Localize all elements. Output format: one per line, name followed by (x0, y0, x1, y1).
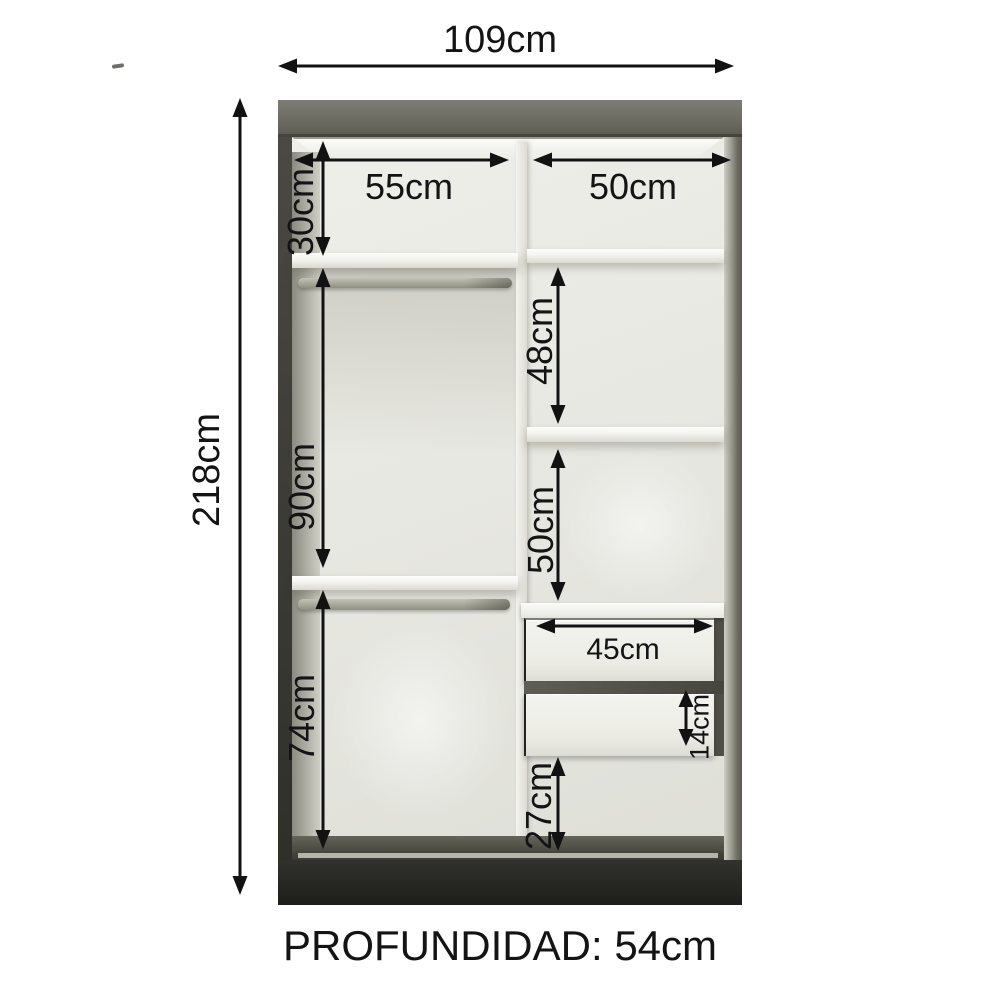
left-middle-shelf (292, 576, 518, 590)
dim-label-upper-left-width: 55cm (365, 169, 453, 205)
dim-label-upper-right-width: 50cm (589, 169, 677, 205)
dim-label-right-middle-height: 50cm (523, 486, 559, 574)
dim-label-left-hanging-height: 90cm (284, 443, 320, 531)
interior-light-patch-left (330, 620, 510, 820)
dim-label-upper-shelf-height: 30cm (283, 168, 319, 256)
dim-label-total-height: 218cm (188, 413, 226, 527)
cabinet-top-panel (278, 100, 742, 137)
dim-label-right-upper-height: 48cm (522, 297, 558, 385)
dim-label-drawer-front-height: 14cm (687, 694, 714, 760)
depth-label: PROFUNDIDAD: 54cm (283, 925, 717, 967)
right-middle-shelf (527, 427, 724, 442)
bottom-sliding-rail (298, 853, 718, 858)
dim-label-total-width: 109cm (443, 21, 557, 59)
dim-label-drawer-width: 45cm (586, 635, 659, 665)
dim-label-left-lower-height: 74cm (284, 674, 320, 762)
dim-label-right-lower-height: 27cm (521, 762, 557, 850)
arrow-total-height (230, 98, 250, 895)
cabinet-right-edge (724, 137, 742, 860)
interior-light-patch-right (560, 450, 720, 600)
stray-mark (112, 63, 124, 69)
wardrobe-dimension-diagram: 109cm 218cm 55cm 50cm 30cm 90cm 74cm 48c… (0, 0, 1000, 1000)
interior-shadow (320, 268, 516, 558)
right-upper-shelf (527, 249, 724, 263)
cabinet-plinth (278, 860, 742, 905)
